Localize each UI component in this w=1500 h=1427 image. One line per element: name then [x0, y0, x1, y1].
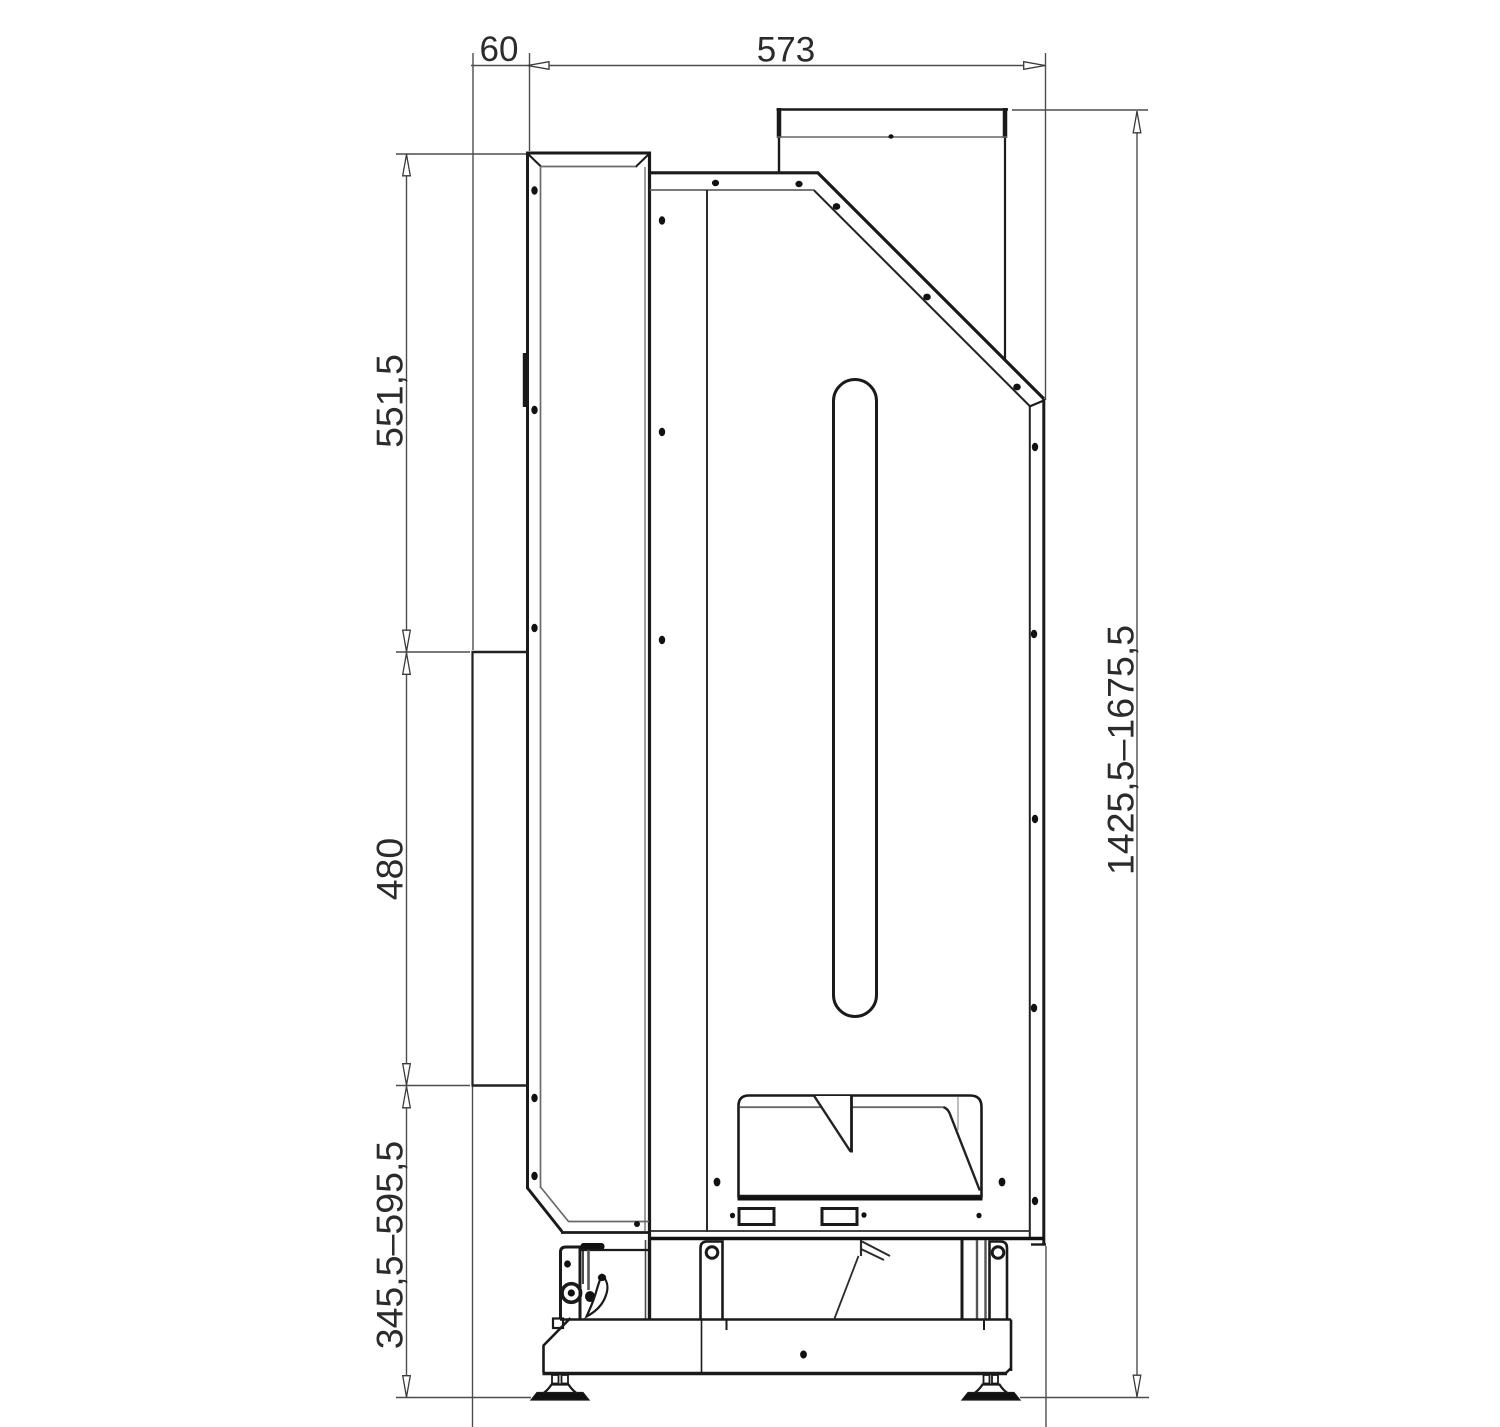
svg-text:345,5–595,5: 345,5–595,5 — [369, 1141, 411, 1350]
svg-text:573: 573 — [757, 31, 815, 70]
svg-text:60: 60 — [480, 30, 519, 69]
svg-text:1425,5–1675,5: 1425,5–1675,5 — [1100, 625, 1142, 875]
svg-text:480: 480 — [369, 838, 411, 901]
svg-text:551,5: 551,5 — [369, 354, 411, 448]
